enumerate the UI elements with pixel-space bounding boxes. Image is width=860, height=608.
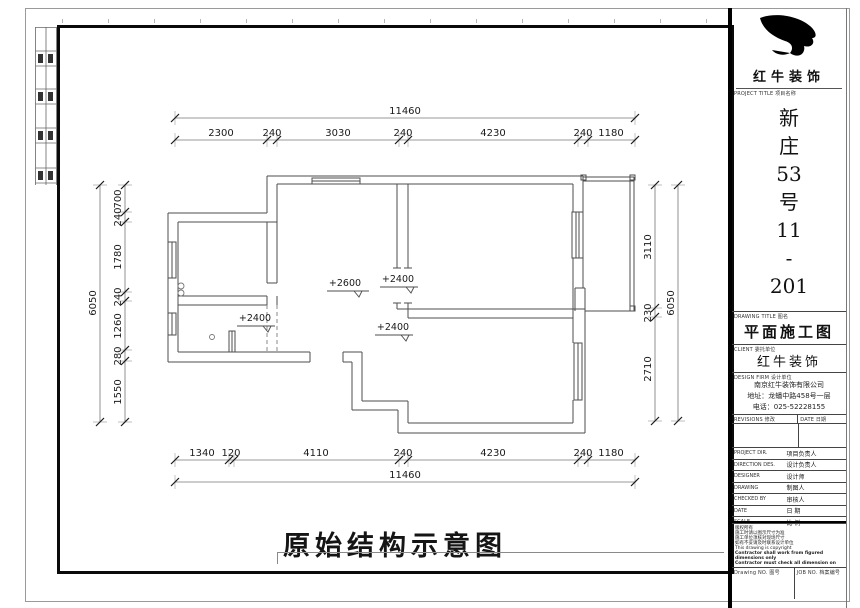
personnel-label: DIRECTION DES. bbox=[732, 462, 786, 468]
revisions-header: REVISIONS 修改 DATE 日期 bbox=[732, 414, 846, 423]
personnel-row: DRAWING 制图人 bbox=[732, 482, 846, 494]
notes-block: 版权所有 施工时请以图示尺寸为准 施工单位须核对现场尺寸 如有不妥请及时联系设计… bbox=[732, 523, 846, 565]
brand-logo-icon bbox=[754, 14, 824, 60]
personnel-label: DATE bbox=[732, 508, 786, 514]
job-no-label: JOB NO. 档案编号 bbox=[795, 568, 846, 577]
revisions-rows bbox=[732, 423, 846, 447]
revisions-label: REVISIONS 修改 bbox=[732, 415, 797, 423]
personnel-label: DESIGNER bbox=[732, 473, 786, 479]
drawing-no-cell: Drawing NO. 图号 bbox=[732, 568, 795, 599]
personnel-row: CHECKED BY 审核人 bbox=[732, 493, 846, 505]
personnel-value: 制图人 bbox=[786, 483, 804, 492]
project-title-label: PROJECT TITLE 项目名称 bbox=[732, 89, 846, 98]
personnel-value: 项目负责人 bbox=[786, 449, 816, 458]
personnel-value: 审核人 bbox=[786, 495, 804, 504]
project-name-char: 号 bbox=[732, 188, 846, 216]
personnel-row: DESIGNER 设计师 bbox=[732, 470, 846, 482]
caption-underline bbox=[277, 552, 724, 564]
personnel-row: DATE 日 期 bbox=[732, 505, 846, 517]
project-name-char: 53 bbox=[732, 160, 846, 188]
personnel-value: 日 期 bbox=[786, 506, 800, 515]
date-col-label: DATE 日期 bbox=[797, 415, 846, 423]
project-name-char: 201 bbox=[732, 272, 846, 300]
project-name-char: 11 bbox=[732, 216, 846, 244]
design-firm-info: 南京红牛装饰有限公司 地址：龙蟠中路458号一层 电话：025-52228155 bbox=[732, 380, 846, 414]
drawing-no-label: Drawing NO. 图号 bbox=[732, 568, 794, 577]
number-cells: Drawing NO. 图号 JOB NO. 档案编号 bbox=[732, 567, 846, 599]
personnel-label: DRAWING bbox=[732, 485, 786, 491]
note-line: Contractor shall work from figured dimen… bbox=[735, 551, 844, 561]
personnel-value: 设计负责人 bbox=[786, 460, 816, 469]
drawing-frame bbox=[57, 25, 734, 574]
signature-strip-marks bbox=[38, 54, 53, 180]
project-name: 新 庄 53 号 11 - 201 bbox=[732, 104, 846, 304]
note-line: Contractor must check all dimension on s… bbox=[735, 561, 844, 565]
design-firm-line: 南京红牛装饰有限公司 bbox=[732, 380, 846, 391]
project-name-char: - bbox=[732, 244, 846, 272]
title-block: 红牛装饰 PROJECT TITLE 项目名称 新 庄 53 号 11 - 20… bbox=[728, 8, 849, 608]
design-firm-line: 地址：龙蟠中路458号一层 bbox=[732, 391, 846, 402]
personnel-row: DIRECTION DES. 设计负责人 bbox=[732, 459, 846, 471]
design-firm-line: 电话：025-52228155 bbox=[732, 402, 846, 413]
personnel-label: CHECKED BY bbox=[732, 496, 786, 502]
personnel-table: PROJECT DIR. 项目负责人 DIRECTION DES. 设计负责人 … bbox=[732, 447, 846, 528]
project-name-char: 新 bbox=[732, 104, 846, 132]
brand-name: 红牛装饰 bbox=[732, 66, 846, 85]
client-name: 红牛装饰 bbox=[732, 352, 846, 374]
job-no-cell: JOB NO. 档案编号 bbox=[795, 568, 846, 599]
ruler-ticks bbox=[62, 19, 722, 23]
signature-strip bbox=[35, 27, 57, 185]
personnel-row: PROJECT DIR. 项目负责人 bbox=[732, 447, 846, 459]
project-name-char: 庄 bbox=[732, 132, 846, 160]
personnel-value: 设计师 bbox=[786, 472, 804, 481]
logo-box: 红牛装饰 PROJECT TITLE 项目名称 bbox=[732, 14, 846, 94]
personnel-label: PROJECT DIR. bbox=[732, 450, 786, 456]
drawing-title: 平面施工图 bbox=[732, 320, 846, 344]
